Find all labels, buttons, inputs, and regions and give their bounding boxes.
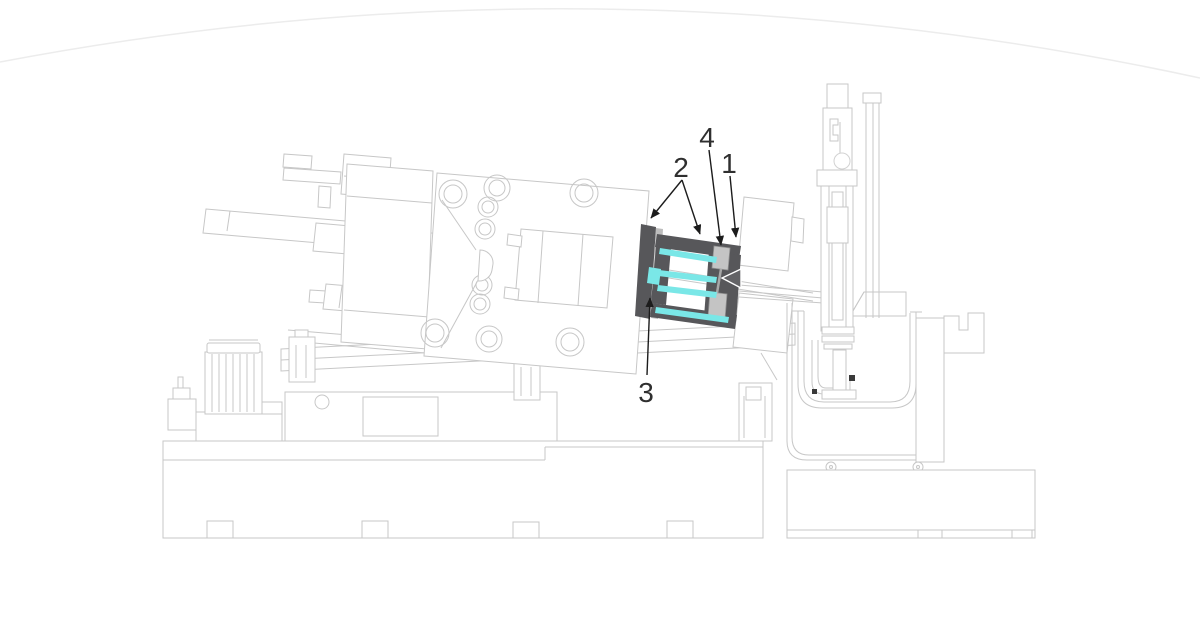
fixed-platen-tab <box>791 217 804 243</box>
pedestal-cap <box>746 387 761 400</box>
enclosure-right-panel <box>916 318 944 462</box>
furnace-top-box <box>850 292 906 316</box>
bed-foot <box>362 521 388 538</box>
ring-stack <box>824 344 852 349</box>
top-small-cylinder-a <box>283 154 312 169</box>
moving-platen <box>421 173 649 374</box>
rail-cap <box>863 93 881 103</box>
fixed-platen-upper <box>738 197 794 271</box>
side-rails <box>866 95 879 318</box>
hydraulic-power-unit <box>168 340 282 441</box>
furnace <box>787 292 984 472</box>
bed-foot <box>513 522 539 538</box>
leader-1 <box>730 176 736 237</box>
ref-label-2: 2 <box>673 152 689 183</box>
fixed-platen-lower <box>733 293 793 353</box>
plunger-lower <box>833 350 846 392</box>
support-left <box>289 337 315 382</box>
rear-platen <box>341 164 433 349</box>
right-base-body <box>787 470 1035 538</box>
lower-cylinder-cap <box>309 290 326 303</box>
console-step <box>944 313 984 353</box>
right-base-foot <box>918 530 942 538</box>
roller-hub <box>917 466 920 469</box>
motor-mount <box>262 402 282 414</box>
leader-2a <box>651 180 682 218</box>
machine-wireframe <box>163 84 1035 538</box>
die-mount-tab-upper <box>507 234 522 247</box>
roller-hub <box>830 466 833 469</box>
right-base-foot <box>1012 530 1032 538</box>
gooseneck-marker <box>849 375 855 381</box>
highlighted-die-assembly <box>635 224 741 329</box>
vertical-injection-unit <box>817 84 881 399</box>
valve-cap <box>173 388 190 399</box>
unit-cap <box>827 84 848 108</box>
rear-platen-body <box>341 164 433 349</box>
leader-2b <box>682 180 700 234</box>
diagram-canvas: 1 2 3 4 <box>0 0 1200 627</box>
ref-label-4: 4 <box>699 122 715 153</box>
fixed-platen-brace <box>761 353 777 380</box>
furnace-base <box>787 470 1035 538</box>
die-mount-tab-lower <box>504 287 519 300</box>
valve-stem <box>178 377 183 388</box>
core-block <box>647 267 661 285</box>
ref-label-1: 1 <box>721 148 737 179</box>
die-mount-block <box>515 229 613 308</box>
cylinder-block <box>827 207 848 243</box>
crosshead <box>817 170 857 186</box>
gooseneck-marker <box>812 389 817 394</box>
plunger-foot <box>822 390 856 399</box>
top-small-cylinder-b <box>283 168 341 184</box>
ref-label-3: 3 <box>638 377 654 408</box>
valve-unit <box>168 399 196 430</box>
machine-diagram: 1 2 3 4 <box>0 0 1200 627</box>
bed-foot <box>207 521 233 538</box>
bed-foot <box>667 521 693 538</box>
fixed-platen <box>733 197 804 380</box>
crucible-inner <box>804 311 910 402</box>
leader-4 <box>709 150 721 245</box>
pedestal <box>739 383 772 441</box>
ring-stack <box>822 336 854 342</box>
deck-plate <box>363 397 438 436</box>
ring-stack <box>822 327 854 334</box>
motor-cap <box>207 343 260 353</box>
background-arc <box>0 9 1200 78</box>
top-cylinder-tab <box>318 186 331 208</box>
pump-block <box>196 412 282 441</box>
pivot-circle <box>834 153 850 169</box>
